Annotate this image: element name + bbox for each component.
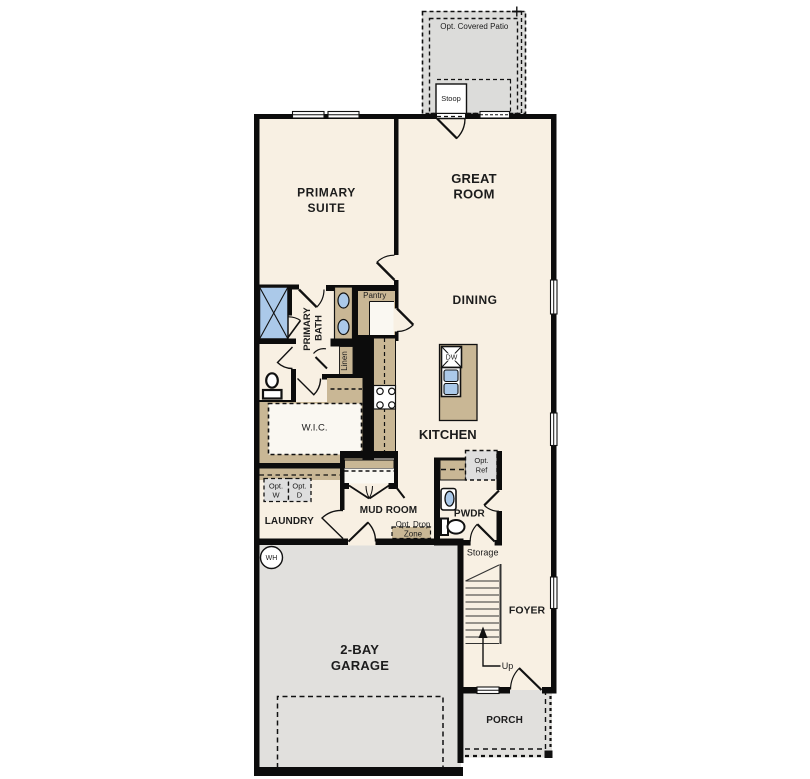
- svg-text:PRIMARY: PRIMARY: [302, 307, 313, 351]
- svg-text:PORCH: PORCH: [486, 715, 523, 726]
- svg-text:D: D: [297, 491, 303, 500]
- svg-text:2-BAY: 2-BAY: [340, 642, 379, 657]
- svg-text:PWDR: PWDR: [454, 509, 486, 520]
- svg-text:ROOM: ROOM: [453, 187, 494, 202]
- svg-text:W.I.C.: W.I.C.: [302, 422, 328, 433]
- svg-text:FOYER: FOYER: [509, 605, 546, 617]
- svg-text:WH: WH: [266, 555, 278, 562]
- svg-text:Ref: Ref: [476, 466, 489, 475]
- svg-text:Zone: Zone: [404, 530, 423, 539]
- svg-text:Opt. Drop: Opt. Drop: [396, 520, 431, 529]
- svg-text:Linen: Linen: [340, 351, 349, 371]
- svg-text:DINING: DINING: [453, 293, 498, 307]
- svg-text:Storage: Storage: [467, 548, 499, 558]
- svg-text:GREAT: GREAT: [451, 171, 497, 186]
- svg-text:GARAGE: GARAGE: [331, 658, 389, 673]
- svg-text:Up: Up: [502, 661, 514, 671]
- svg-text:DW: DW: [446, 355, 458, 362]
- svg-text:Pantry: Pantry: [363, 291, 386, 300]
- svg-text:Opt. Covered Patio: Opt. Covered Patio: [440, 22, 509, 31]
- svg-text:BATH: BATH: [314, 315, 325, 341]
- svg-text:MUD ROOM: MUD ROOM: [360, 505, 417, 516]
- svg-text:PRIMARY: PRIMARY: [297, 186, 356, 200]
- svg-text:Opt.: Opt.: [292, 482, 306, 491]
- svg-text:W: W: [272, 491, 280, 500]
- svg-text:Opt.: Opt.: [269, 482, 283, 491]
- svg-text:KITCHEN: KITCHEN: [419, 427, 477, 442]
- svg-text:Stoop: Stoop: [441, 94, 461, 103]
- svg-text:LAUNDRY: LAUNDRY: [265, 516, 314, 527]
- svg-text:Opt.: Opt.: [474, 456, 488, 465]
- svg-text:SUITE: SUITE: [307, 201, 345, 215]
